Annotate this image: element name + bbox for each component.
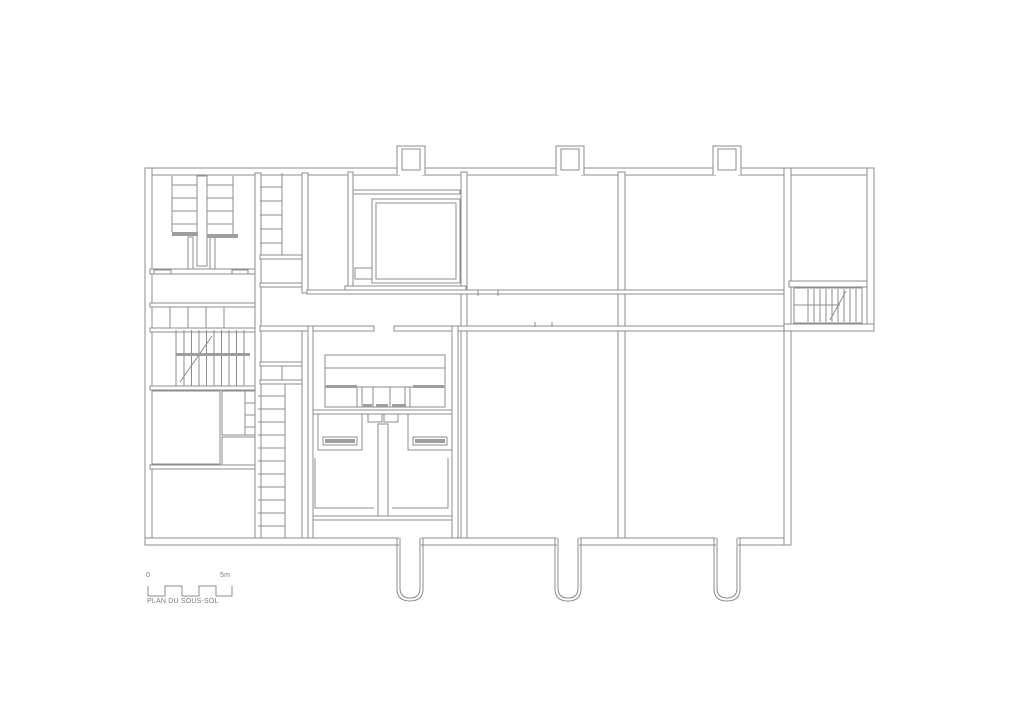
scale-bar [148,586,232,596]
scale-end-label: 5m [220,572,230,580]
light-wells [397,537,740,601]
stair-treads [172,185,856,526]
floor-plan [0,0,1024,724]
drawing-sheet: 0 5m PLAN DU SOUS-SOL [0,0,1024,724]
walls [145,168,874,545]
plan-title: PLAN DU SOUS-SOL [147,598,219,606]
scale-zero-label: 0 [146,572,150,580]
detail-lines [170,173,846,538]
